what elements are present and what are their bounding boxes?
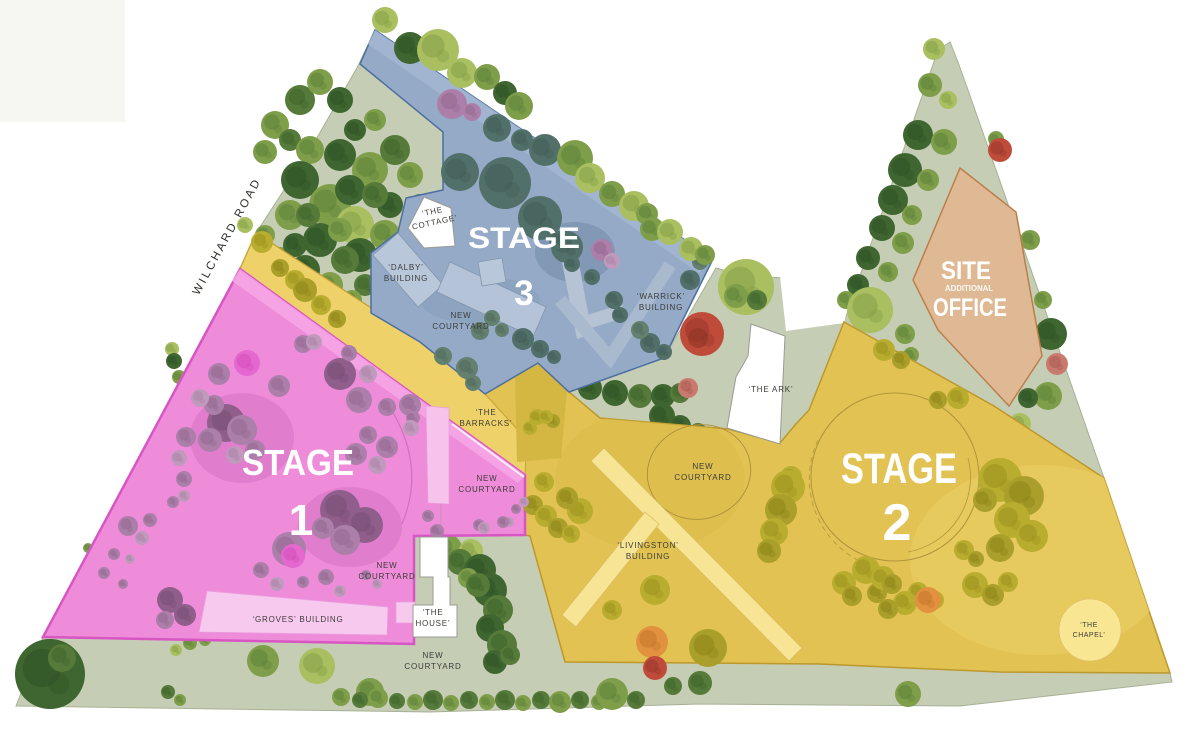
svg-text:‘THE: ‘THE bbox=[1080, 622, 1098, 629]
svg-text:NEW: NEW bbox=[476, 474, 497, 483]
svg-text:‘DALBY’: ‘DALBY’ bbox=[388, 263, 423, 272]
svg-text:NEW: NEW bbox=[376, 561, 397, 570]
svg-text:‘THE: ‘THE bbox=[476, 408, 497, 417]
svg-text:STAGE: STAGE bbox=[841, 445, 957, 493]
svg-text:ADDITIONAL: ADDITIONAL bbox=[945, 284, 993, 293]
svg-text:HOUSE’: HOUSE’ bbox=[415, 619, 450, 628]
svg-text:STAGE: STAGE bbox=[242, 442, 354, 483]
svg-text:COURTYARD: COURTYARD bbox=[404, 662, 461, 671]
svg-text:BARRACKS’: BARRACKS’ bbox=[460, 419, 513, 428]
svg-text:1: 1 bbox=[289, 496, 313, 545]
svg-text:‘GROVES’ BUILDING: ‘GROVES’ BUILDING bbox=[252, 615, 343, 624]
svg-text:COURTYARD: COURTYARD bbox=[674, 473, 731, 482]
svg-text:NEW: NEW bbox=[692, 462, 713, 471]
svg-text:NEW: NEW bbox=[450, 311, 471, 320]
svg-text:SITE: SITE bbox=[941, 257, 991, 285]
svg-text:COURTYARD: COURTYARD bbox=[432, 322, 489, 331]
svg-text:CHAPEL’: CHAPEL’ bbox=[1073, 632, 1106, 639]
svg-text:OFFICE: OFFICE bbox=[933, 294, 1007, 322]
svg-text:‘LIVINGSTON’: ‘LIVINGSTON’ bbox=[617, 541, 678, 550]
svg-text:‘THE ARK’: ‘THE ARK’ bbox=[749, 385, 794, 394]
svg-text:BUILDING: BUILDING bbox=[626, 552, 670, 561]
svg-text:3: 3 bbox=[514, 274, 533, 313]
svg-text:COURTYARD: COURTYARD bbox=[458, 485, 515, 494]
svg-text:COURTYARD: COURTYARD bbox=[358, 572, 415, 581]
svg-text:2: 2 bbox=[883, 494, 912, 552]
svg-text:STAGE: STAGE bbox=[468, 222, 580, 255]
svg-text:BUILDING: BUILDING bbox=[384, 274, 428, 283]
svg-text:‘WARRICK’: ‘WARRICK’ bbox=[637, 292, 685, 301]
svg-text:‘THE: ‘THE bbox=[423, 608, 444, 617]
svg-text:NEW: NEW bbox=[422, 651, 443, 660]
svg-text:BUILDING: BUILDING bbox=[639, 303, 683, 312]
